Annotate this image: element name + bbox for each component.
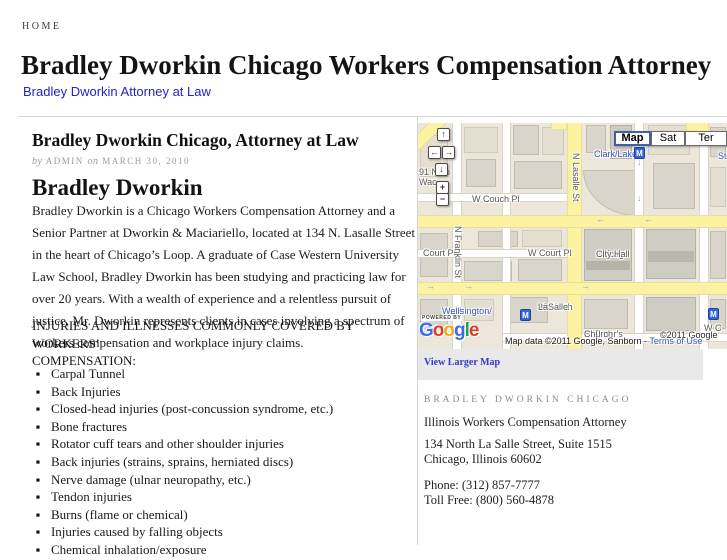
street-label-lasalle: N Lasalle St xyxy=(571,153,581,202)
poi-label-30n-2: LaSalle xyxy=(538,302,568,312)
google-logo-letter: o xyxy=(433,320,444,341)
injury-list-item: Burns (flame or chemical) xyxy=(36,507,416,525)
map-building xyxy=(513,125,539,155)
map-building xyxy=(710,231,726,279)
oneway-arrow-icon: → xyxy=(581,281,590,291)
map-type-button-map[interactable]: Map xyxy=(614,131,651,146)
map-type-button-ter[interactable]: Ter xyxy=(685,131,727,146)
map-building xyxy=(710,167,726,207)
street-label-w-court-pl: W Court Pl xyxy=(528,248,572,258)
oneway-arrow-icon: ← xyxy=(644,214,653,224)
city-hall-detail xyxy=(586,261,630,270)
google-logo-letter: e xyxy=(469,320,479,341)
map-building xyxy=(584,299,628,329)
street-label-franklin: N Franklin St xyxy=(453,226,463,278)
post-title: Bradley Dworkin Chicago, Attorney at Law xyxy=(32,130,359,151)
map-building xyxy=(522,230,562,247)
road-minor-v2 xyxy=(700,123,708,349)
injury-list-item: Carpal Tunnel xyxy=(36,366,416,384)
oneway-arrow-icon: ↓ xyxy=(637,193,642,203)
view-larger-map-link[interactable]: View Larger Map xyxy=(424,357,500,368)
attorney-name-heading: Bradley Dworkin xyxy=(32,175,203,201)
map-curved-building xyxy=(583,170,637,216)
oneway-arrow-icon: ← xyxy=(596,214,605,224)
map-building xyxy=(514,161,562,189)
google-logo[interactable]: Google xyxy=(419,320,478,342)
google-logo-letter: g xyxy=(454,320,465,341)
injury-list-item: Bone fractures xyxy=(36,419,416,437)
sidebar-tagline: Illinois Workers Compensation Attorney xyxy=(424,415,627,430)
road-stub-1 xyxy=(552,123,566,129)
google-logo-letter: G xyxy=(419,320,433,341)
pan-up-button[interactable]: ↑ xyxy=(437,128,450,141)
byline-author-link[interactable]: ADMIN xyxy=(46,156,84,166)
injury-list-item: Nerve damage (ulnar neuropathy, etc.) xyxy=(36,472,416,490)
map-building xyxy=(646,297,696,331)
injury-list-item: Rotator cuff tears and other shoulder in… xyxy=(36,436,416,454)
station-label-clark-lake: Clark/Lake xyxy=(594,149,637,159)
site-title: Bradley Dworkin Chicago Workers Compensa… xyxy=(21,50,721,81)
byline-date: MARCH 30, 2010 xyxy=(102,156,190,166)
sidebar-address-line1: 134 North La Salle Street, Suite 1515 xyxy=(424,437,612,452)
injury-list-item: Injuries caused by falling objects xyxy=(36,524,416,542)
sidebar-phone: Phone: (312) 857-7777 xyxy=(424,478,540,493)
post-byline: by ADMIN on MARCH 30, 2010 xyxy=(32,156,190,167)
map-attribution: Map data ©2011 Google, Sanborn - Terms o… xyxy=(505,336,702,346)
pan-left-button[interactable]: ← xyxy=(428,146,441,159)
road-minor-v xyxy=(503,123,510,349)
poi-label-city-hall-2: City Hall xyxy=(596,249,630,259)
metro-station-icon[interactable]: M xyxy=(708,308,719,320)
map-building xyxy=(653,163,695,209)
home-nav-link[interactable]: HOME xyxy=(22,21,61,32)
map-type-button-sat[interactable]: Sat xyxy=(651,131,685,146)
zoom-out-button[interactable]: − xyxy=(436,193,449,206)
metro-station-icon[interactable]: M xyxy=(634,147,645,159)
metro-station-icon[interactable]: M xyxy=(520,309,531,321)
oneway-arrow-icon: → xyxy=(464,281,473,291)
site-subtitle-link[interactable]: Bradley Dworkin Attorney at Law xyxy=(23,84,211,99)
station-label-state-cut: St xyxy=(718,151,727,161)
injuries-list: Carpal TunnelBack InjuriesClosed-head in… xyxy=(36,366,416,560)
pan-down-button[interactable]: ↓ xyxy=(435,163,448,176)
injury-list-item: Back Injuries xyxy=(36,384,416,402)
map-attribution-text: Map data ©2011 Google, Sanborn - xyxy=(505,336,649,346)
oneway-arrow-icon: → xyxy=(426,281,435,291)
street-label-couch: W Couch Pl xyxy=(472,194,520,204)
injuries-list-heading: INJURIES AND ILLNESSES COMMONLY COVERED … xyxy=(32,317,424,370)
sidebar-address-line2: Chicago, Illinois 60602 xyxy=(424,452,542,467)
injury-list-item: Closed-head injuries (post-concussion sy… xyxy=(36,401,416,419)
map-building xyxy=(464,127,498,153)
terms-of-use-link[interactable]: Terms of Use xyxy=(649,336,702,346)
map-building-detail xyxy=(648,251,694,262)
map-building xyxy=(542,127,564,155)
byline-on: on xyxy=(87,156,98,167)
injuries-list-heading-line1: INJURIES AND ILLNESSES COMMONLY COVERED … xyxy=(32,317,424,352)
map-building xyxy=(518,259,562,281)
map-building xyxy=(466,159,496,187)
street-label-court-pl: Court Pl xyxy=(423,248,456,258)
header-divider xyxy=(18,116,727,117)
street-label-wac: Wac xyxy=(419,177,437,187)
google-map-embed[interactable]: ↓ ↓ ↓ ↓ ← ← → → → W Couch Pl Court Pl W … xyxy=(418,123,727,349)
sidebar-tollfree: Toll Free: (800) 560-4878 xyxy=(424,493,554,508)
google-logo-letter: o xyxy=(443,320,454,341)
injury-list-item: Back injuries (strains, sprains, herniat… xyxy=(36,454,416,472)
injury-list-item: Tendon injuries xyxy=(36,489,416,507)
map-building xyxy=(478,231,518,247)
pan-right-button[interactable]: → xyxy=(442,146,455,159)
road-randolph xyxy=(418,216,727,227)
byline-by: by xyxy=(32,156,42,167)
sidebar-heading: BRADLEY DWORKIN CHICAGO xyxy=(424,395,631,405)
